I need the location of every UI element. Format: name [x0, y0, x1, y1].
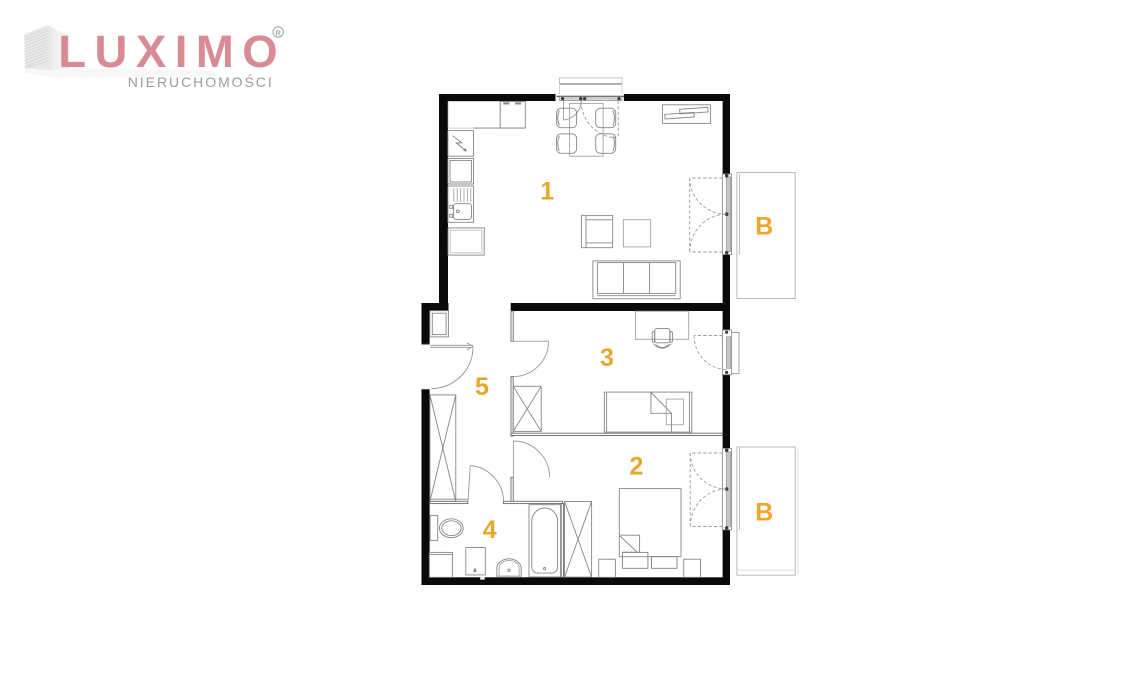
svg-text:LUXIMO: LUXIMO — [58, 26, 286, 77]
svg-text:B: B — [755, 213, 773, 241]
svg-text:4: 4 — [483, 516, 497, 544]
svg-text:3: 3 — [600, 344, 614, 372]
svg-text:B: B — [755, 499, 773, 527]
svg-text:5: 5 — [475, 373, 489, 401]
svg-text:NIERUCHOMOŚCI: NIERUCHOMOŚCI — [128, 73, 274, 90]
svg-text:R: R — [276, 28, 282, 37]
svg-text:2: 2 — [630, 453, 644, 481]
svg-text:1: 1 — [540, 177, 554, 205]
